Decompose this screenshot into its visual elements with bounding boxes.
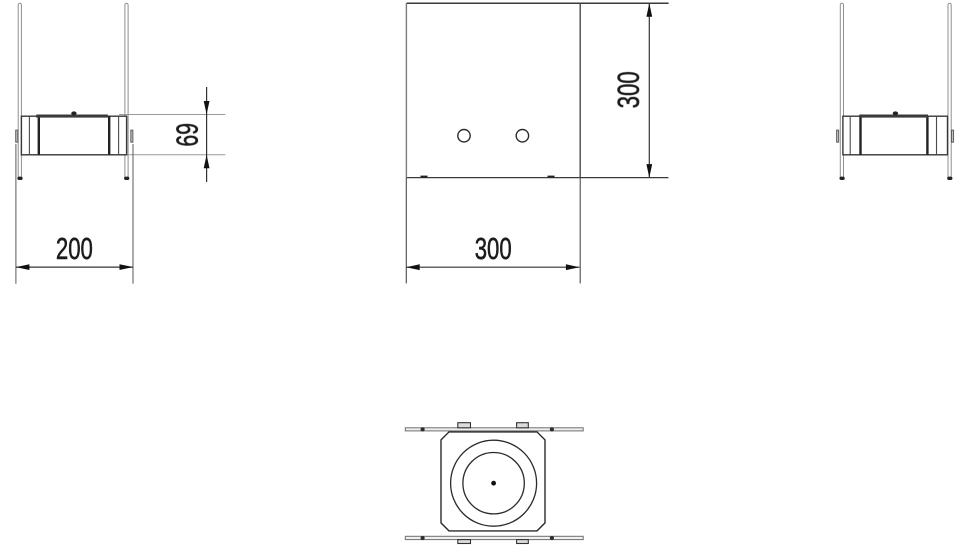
svg-text:200: 200 — [56, 232, 93, 266]
svg-text:300: 300 — [612, 71, 646, 108]
svg-text:300: 300 — [475, 232, 512, 266]
svg-text:69: 69 — [171, 123, 205, 147]
